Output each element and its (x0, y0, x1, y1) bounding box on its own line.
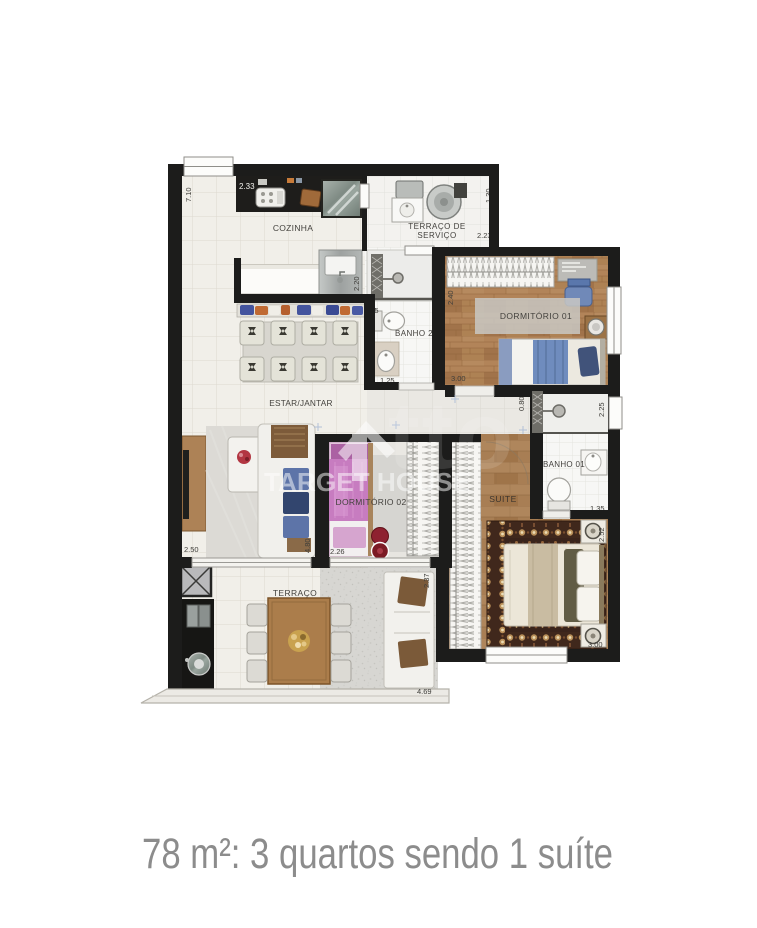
svg-text:2.25: 2.25 (597, 402, 606, 417)
svg-text:TERRAÇO DE: TERRAÇO DE (408, 222, 465, 231)
svg-text:0.80: 0.80 (517, 396, 526, 411)
svg-text:ESTAR/JANTAR: ESTAR/JANTAR (269, 398, 332, 408)
svg-text:2.52: 2.52 (597, 527, 606, 542)
svg-text:COZINHA: COZINHA (273, 223, 313, 233)
svg-text:4.80: 4.80 (303, 538, 312, 553)
svg-text:2.26: 2.26 (330, 547, 345, 556)
svg-text:BANHO 2: BANHO 2 (395, 329, 433, 338)
svg-text:3.00: 3.00 (451, 374, 466, 383)
svg-text:7.10: 7.10 (184, 187, 193, 202)
svg-text:3.00: 3.00 (588, 640, 603, 649)
svg-text:DORMITÓRIO 01: DORMITÓRIO 01 (500, 311, 572, 321)
svg-text:2.50: 2.50 (184, 545, 199, 554)
svg-text:SUITE: SUITE (489, 494, 517, 504)
svg-text:SERVIÇO: SERVIÇO (417, 231, 456, 240)
svg-text:BANHO 01: BANHO 01 (543, 460, 585, 469)
svg-text:78 m²: 3 quartos sendo 1 suíte: 78 m²: 3 quartos sendo 1 suíte (142, 830, 613, 878)
svg-text:2.37: 2.37 (422, 573, 431, 588)
svg-text:2.40: 2.40 (446, 290, 455, 305)
svg-text:2.33: 2.33 (239, 182, 255, 191)
svg-text:4.69: 4.69 (417, 687, 432, 696)
svg-text:TERRAÇO: TERRAÇO (273, 588, 317, 598)
svg-text:2.20: 2.20 (352, 276, 361, 291)
svg-text:DORMITÓRIO 02: DORMITÓRIO 02 (336, 497, 407, 507)
svg-text:TARGET HOUSE: TARGET HOUSE (264, 467, 470, 497)
